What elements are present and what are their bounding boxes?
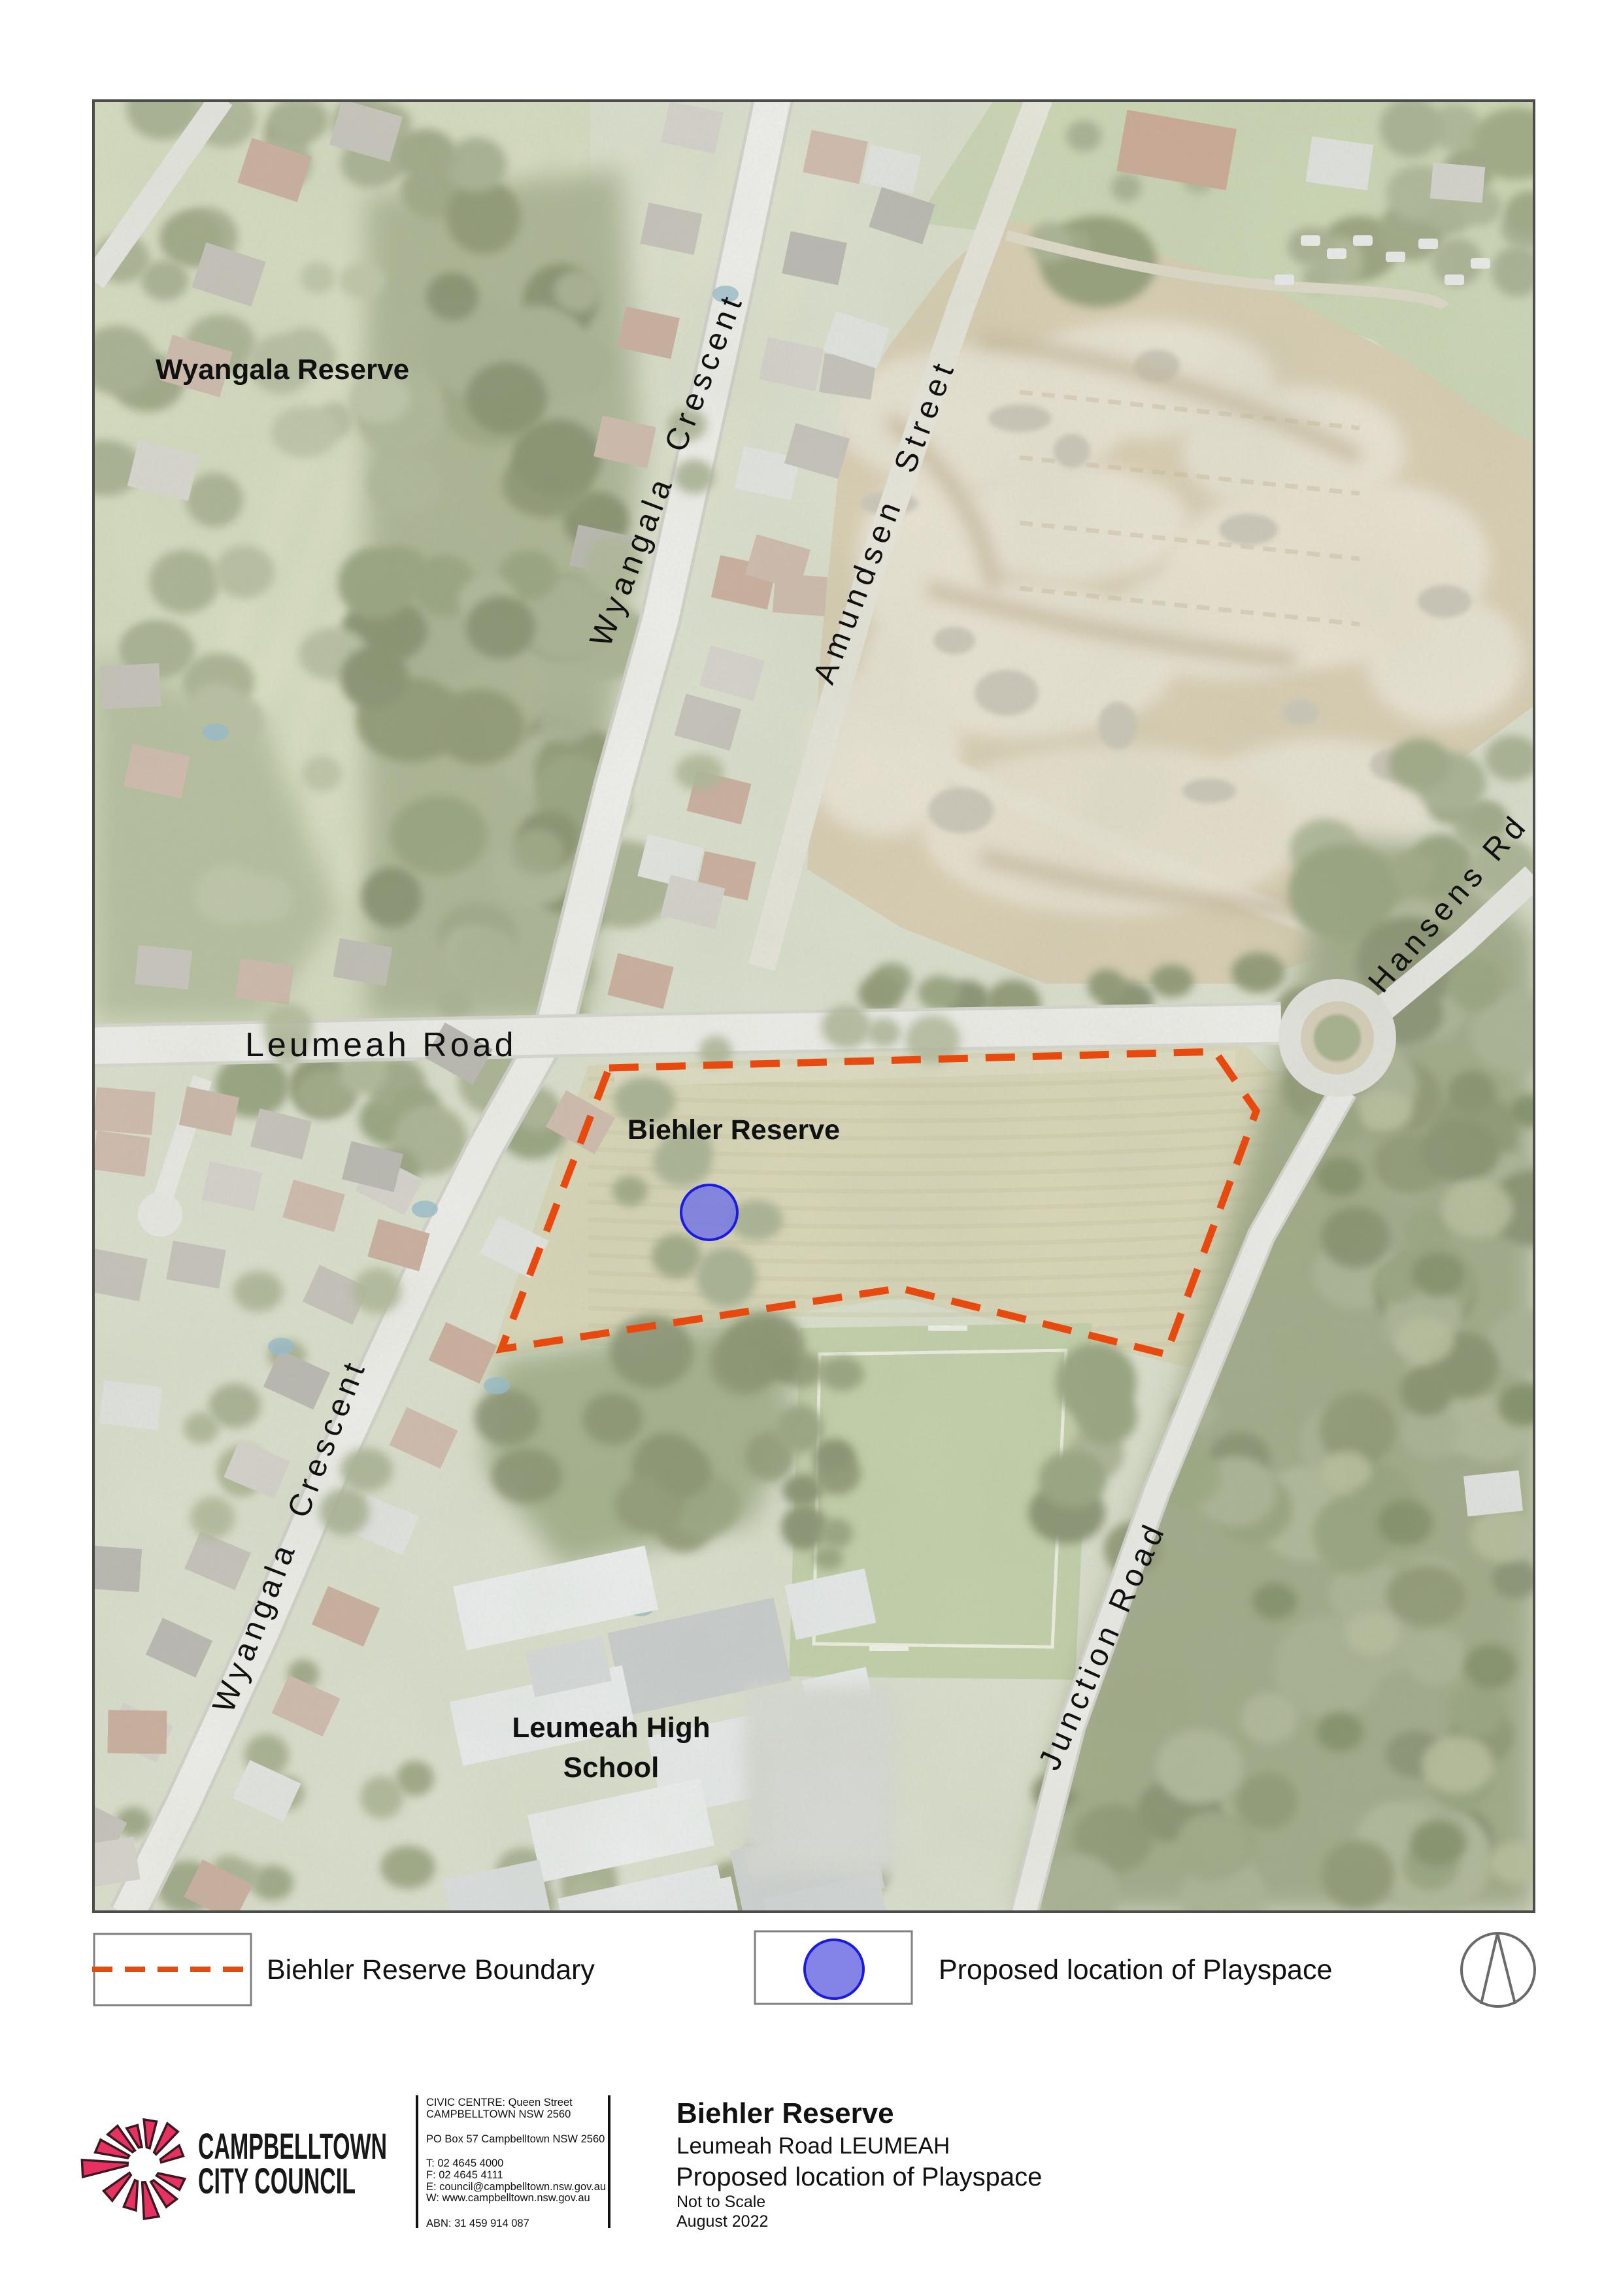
svg-text:T: 02 4645 4000: T: 02 4645 4000 — [426, 2157, 503, 2169]
svg-text:Biehler Reserve: Biehler Reserve — [627, 1114, 840, 1146]
svg-text:Leumeah High: Leumeah High — [512, 1712, 710, 1744]
svg-text:PO Box 57 Campbelltown NSW 256: PO Box 57 Campbelltown NSW 2560 — [426, 2133, 605, 2145]
svg-text:CAMPBELLTOWN NSW 2560: CAMPBELLTOWN NSW 2560 — [426, 2108, 571, 2120]
svg-text:CIVIC CENTRE: Queen Street: CIVIC CENTRE: Queen Street — [426, 2097, 573, 2108]
svg-text:Proposed location of Playspace: Proposed location of Playspace — [939, 1954, 1332, 1986]
svg-text:Biehler Reserve: Biehler Reserve — [677, 2097, 894, 2129]
svg-text:ABN: 31 459 914 087: ABN: 31 459 914 087 — [426, 2218, 529, 2229]
svg-text:Leumeah Road LEUMEAH: Leumeah Road LEUMEAH — [677, 2133, 950, 2159]
svg-text:F: 02 4645 4111: F: 02 4645 4111 — [426, 2169, 503, 2181]
svg-text:Leumeah Road: Leumeah Road — [245, 1026, 517, 1064]
svg-text:E: council@campbelltown.nsw.go: E: council@campbelltown.nsw.gov.au — [426, 2181, 606, 2193]
svg-text:CITY COUNCIL: CITY COUNCIL — [198, 2160, 356, 2201]
svg-text:Wyangala Reserve: Wyangala Reserve — [156, 354, 409, 386]
svg-text:W: www.campbelltown.nsw.gov.au: W: www.campbelltown.nsw.gov.au — [426, 2192, 590, 2204]
svg-text:School: School — [563, 1752, 660, 1784]
svg-text:Biehler Reserve Boundary: Biehler Reserve Boundary — [267, 1954, 595, 1986]
svg-text:Proposed location of Playspace: Proposed location of Playspace — [676, 2163, 1042, 2191]
svg-text:Not to Scale: Not to Scale — [677, 2193, 765, 2211]
svg-text:August 2022: August 2022 — [677, 2212, 768, 2231]
